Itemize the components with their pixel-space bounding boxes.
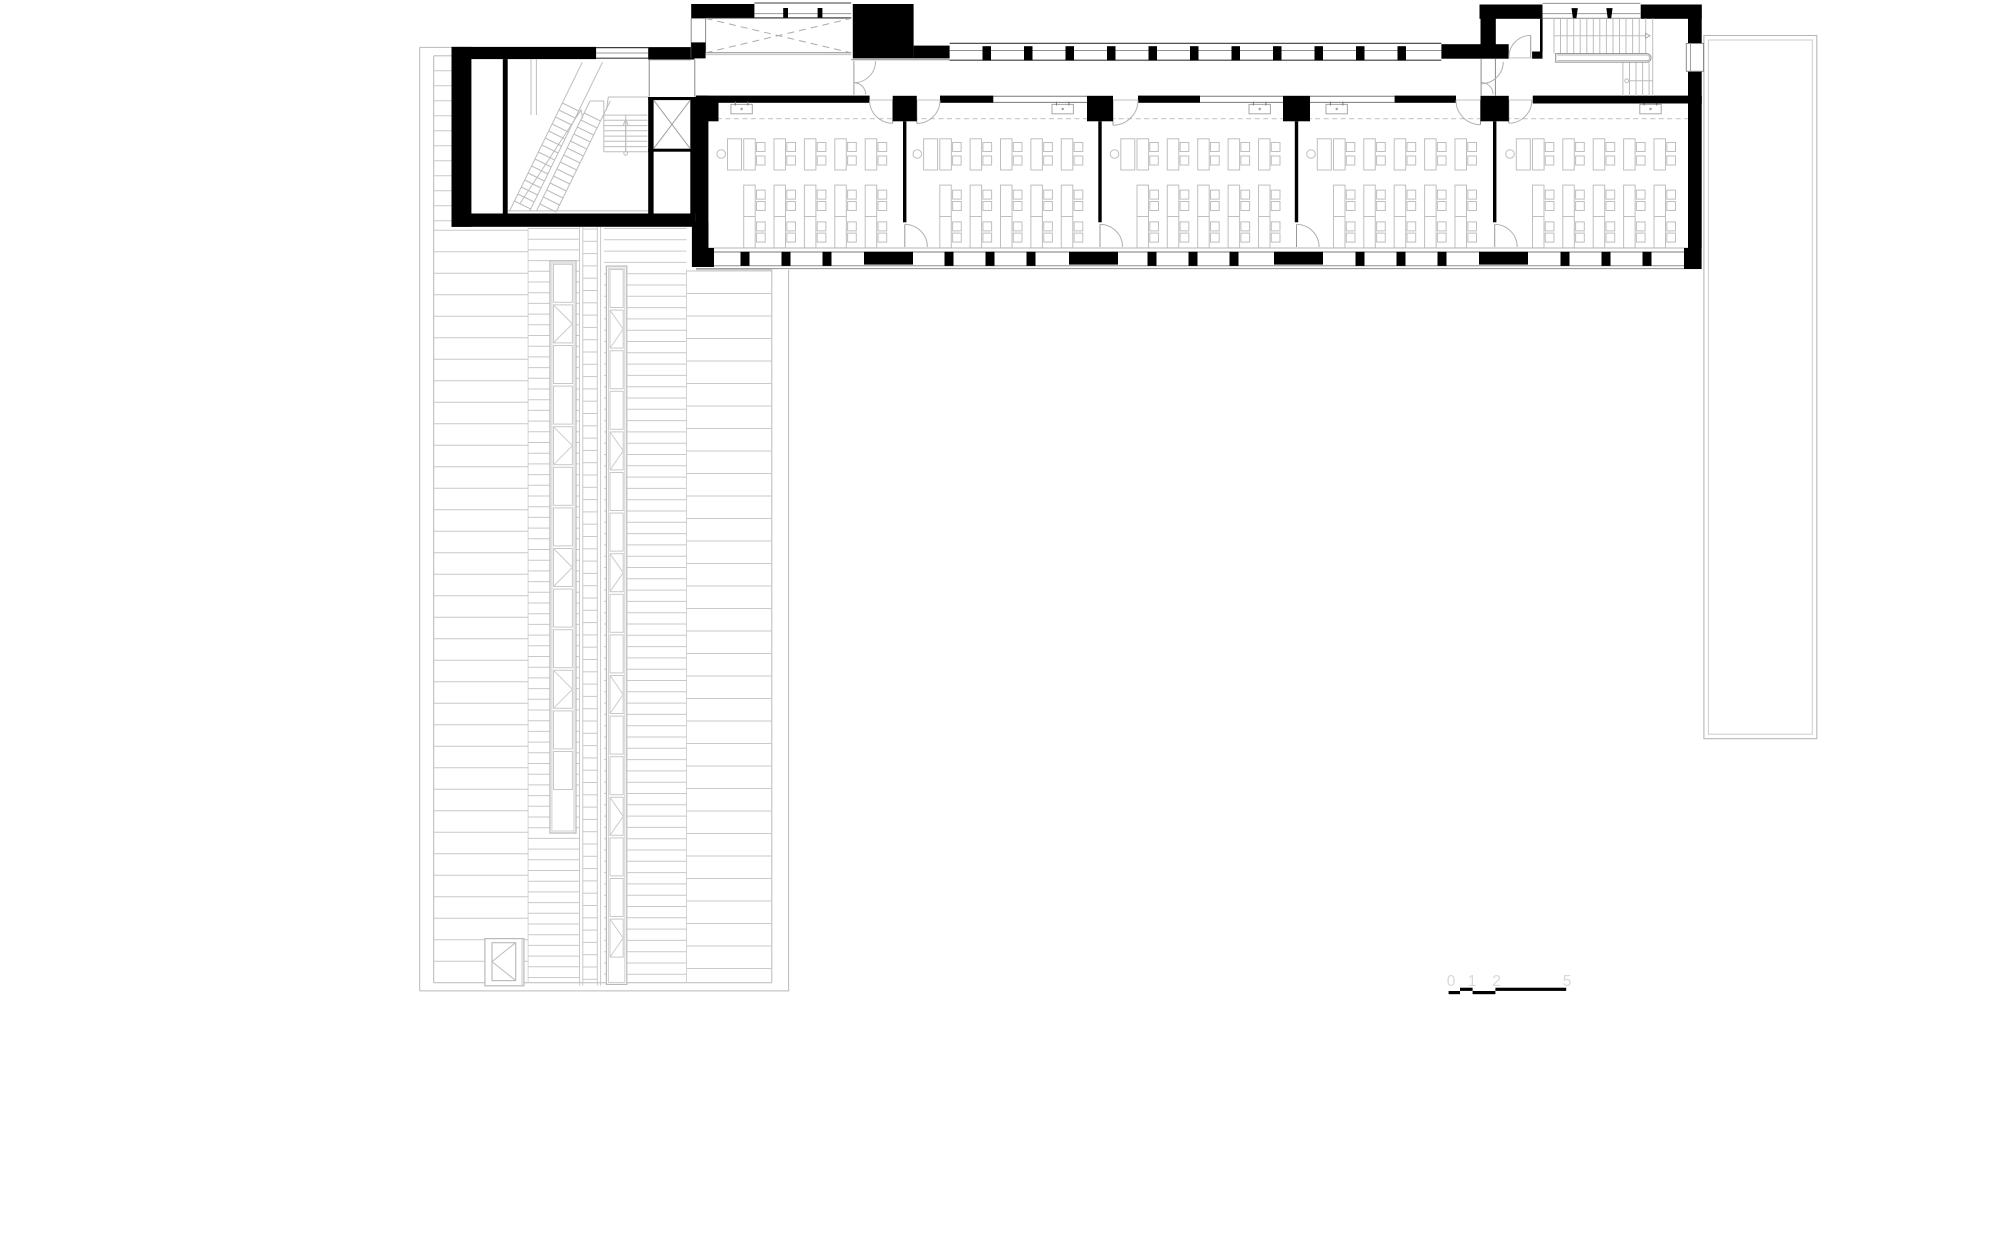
svg-text:1: 1 [1468,973,1477,990]
svg-text:0: 0 [1447,973,1456,990]
svg-text:2: 2 [1492,973,1501,990]
svg-text:5: 5 [1563,973,1572,990]
